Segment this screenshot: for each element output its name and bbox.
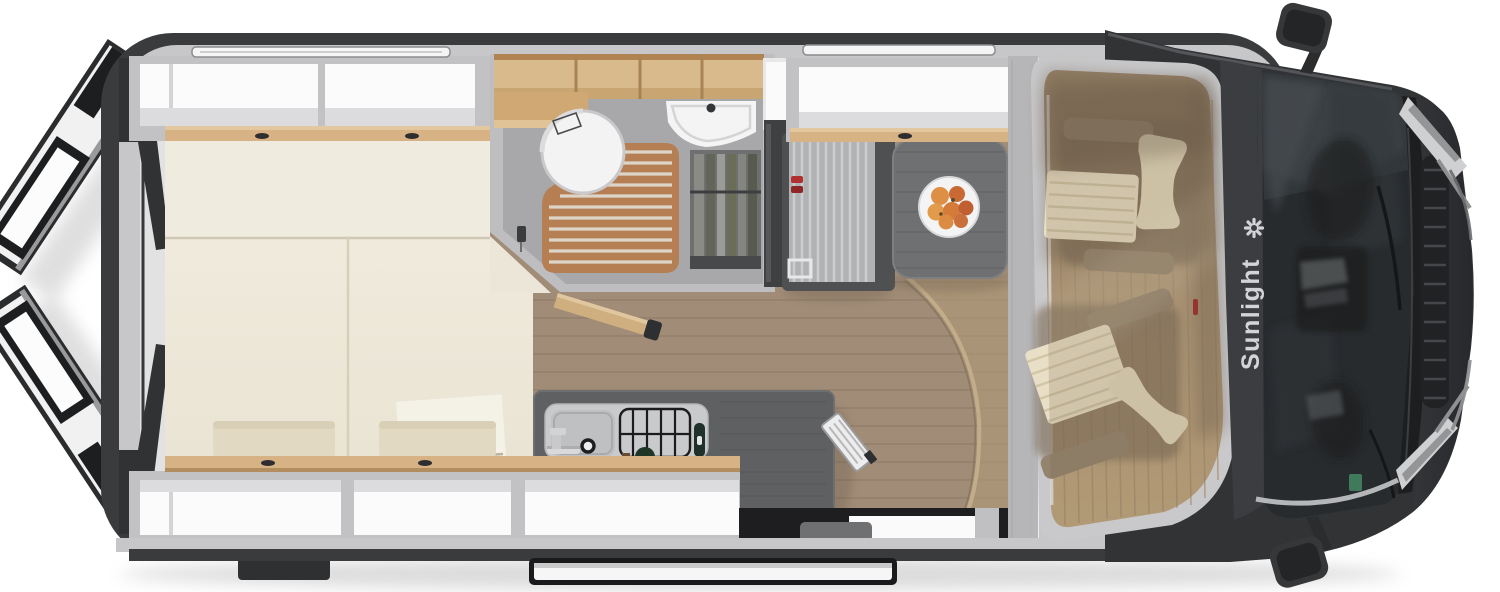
svg-text:Sunlight: Sunlight bbox=[1237, 258, 1265, 370]
